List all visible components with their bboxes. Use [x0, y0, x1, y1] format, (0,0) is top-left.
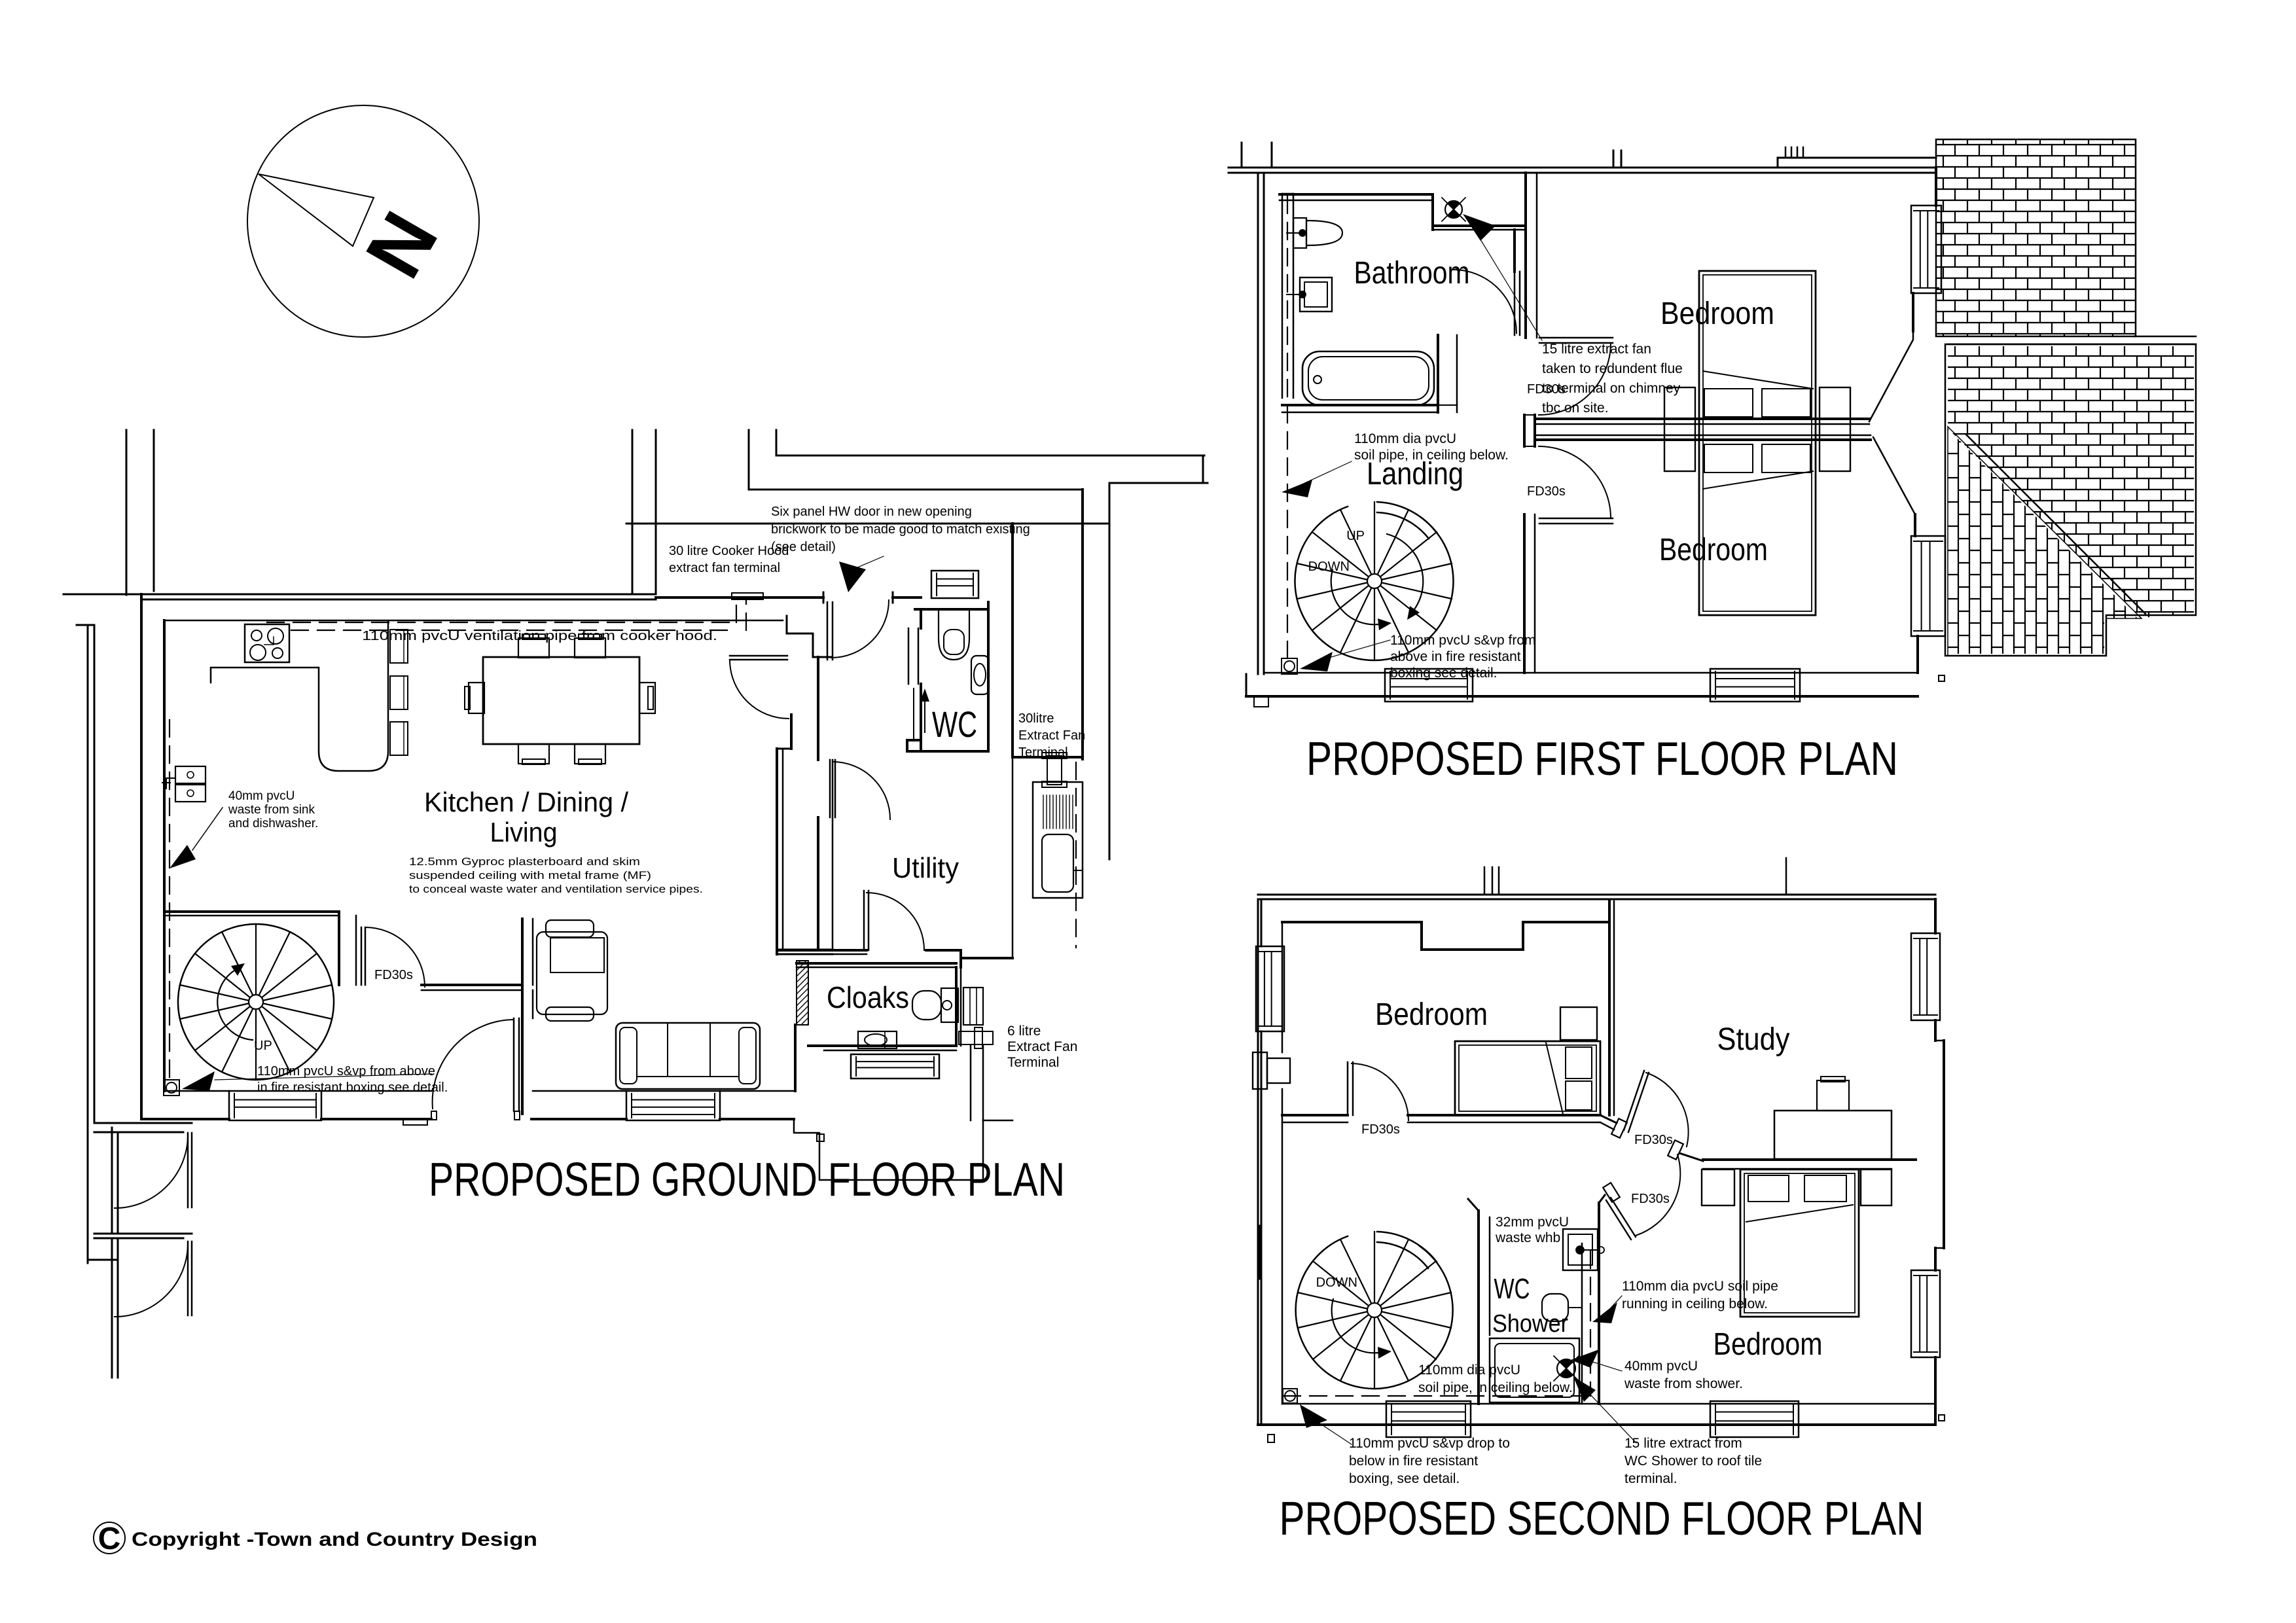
- svg-text:Extract Fan: Extract Fan: [1018, 728, 1085, 743]
- svg-text:110mm pvcU s&vp from above: 110mm pvcU s&vp from above: [257, 1064, 435, 1079]
- svg-text:FD30s: FD30s: [1527, 484, 1566, 499]
- svg-text:Kitchen / Dining /: Kitchen / Dining /: [424, 787, 628, 817]
- svg-text:40mm pvcU: 40mm pvcU: [228, 789, 295, 803]
- svg-text:Utility: Utility: [892, 852, 959, 884]
- svg-text:FD30s: FD30s: [1361, 1122, 1400, 1137]
- svg-text:and dishwasher.: and dishwasher.: [228, 817, 318, 830]
- svg-text:110mm pvcU s&vp from: 110mm pvcU s&vp from: [1390, 633, 1536, 648]
- svg-text:boxing, see detail.: boxing, see detail.: [1349, 1471, 1460, 1486]
- svg-text:FD30s: FD30s: [1634, 1133, 1673, 1147]
- svg-text:Study: Study: [1717, 1022, 1790, 1057]
- svg-text:PROPOSED FIRST FLOOR PLAN: PROPOSED FIRST FLOOR PLAN: [1306, 733, 1898, 785]
- svg-text:15 litre extract fan: 15 litre extract fan: [1542, 342, 1651, 357]
- svg-text:110mm dia pvcU: 110mm dia pvcU: [1354, 431, 1456, 446]
- svg-text:30litre: 30litre: [1018, 711, 1054, 726]
- svg-text:32mm pvcU: 32mm pvcU: [1496, 1215, 1569, 1230]
- svg-text:110mm dia pvcU soil pipe: 110mm dia pvcU soil pipe: [1622, 1279, 1778, 1294]
- svg-text:suspended ceiling with metal f: suspended ceiling with metal frame (MF): [409, 869, 651, 882]
- svg-text:terminal.: terminal.: [1624, 1471, 1677, 1486]
- svg-text:Six panel HW door in new openi: Six panel HW door in new opening: [771, 505, 972, 519]
- svg-text:Bathroom: Bathroom: [1354, 256, 1470, 291]
- svg-text:UP: UP: [254, 1039, 272, 1053]
- svg-text:FD30s: FD30s: [374, 968, 413, 982]
- svg-text:Bedroom: Bedroom: [1375, 997, 1488, 1032]
- svg-text:waste from sink: waste from sink: [228, 803, 315, 817]
- svg-text:15 litre extract from: 15 litre extract from: [1624, 1436, 1742, 1451]
- svg-text:below in fire resistant: below in fire resistant: [1349, 1454, 1478, 1469]
- svg-text:FD30s: FD30s: [1631, 1192, 1670, 1206]
- svg-text:boxing see detail.: boxing see detail.: [1390, 666, 1497, 681]
- svg-text:DOWN: DOWN: [1316, 1275, 1357, 1290]
- svg-text:110mm pvcU s&vp drop to: 110mm pvcU s&vp drop to: [1349, 1436, 1510, 1451]
- svg-text:above in fire resistant: above in fire resistant: [1390, 649, 1521, 664]
- svg-text:WC: WC: [1494, 1273, 1530, 1305]
- svg-text:extract fan terminal: extract fan terminal: [669, 561, 780, 575]
- svg-text:40mm pvcU: 40mm pvcU: [1624, 1359, 1698, 1374]
- svg-text:in fire resistant boxing see d: in fire resistant boxing see detail.: [257, 1080, 448, 1095]
- svg-text:6 litre: 6 litre: [1007, 1024, 1041, 1039]
- svg-text:Bedroom: Bedroom: [1713, 1327, 1823, 1362]
- svg-text:UP: UP: [1346, 529, 1365, 543]
- svg-text:110mm dia pvcU: 110mm dia pvcU: [1418, 1363, 1520, 1378]
- svg-text:Extract Fan: Extract Fan: [1007, 1039, 1077, 1054]
- svg-text:WC Shower to roof tile: WC Shower to roof tile: [1624, 1454, 1762, 1469]
- svg-text:PROPOSED SECOND FLOOR PLAN: PROPOSED SECOND FLOOR PLAN: [1280, 1493, 1924, 1545]
- svg-text:Terminal: Terminal: [1007, 1055, 1059, 1070]
- svg-text:C: C: [98, 1522, 121, 1556]
- svg-text:to conceal waste water and ven: to conceal waste water and ventilation s…: [409, 883, 703, 895]
- svg-text:waste whb: waste whb: [1495, 1230, 1560, 1245]
- svg-text:12.5mm Gyproc plasterboard and: 12.5mm Gyproc plasterboard and skim: [409, 855, 640, 868]
- svg-text:PROPOSED GROUND FLOOR PLAN: PROPOSED GROUND FLOOR PLAN: [429, 1154, 1065, 1206]
- svg-text:Living: Living: [490, 817, 558, 847]
- svg-text:brickwork to be made good to m: brickwork to be made good to match exist…: [771, 522, 1030, 537]
- svg-text:Copyright -Town and Country De: Copyright -Town and Country Design: [132, 1529, 537, 1550]
- svg-text:Shower: Shower: [1492, 1310, 1568, 1338]
- svg-text:waste from shower.: waste from shower.: [1624, 1376, 1743, 1391]
- svg-text:soil pipe, in ceiling below.: soil pipe, in ceiling below.: [1418, 1380, 1573, 1395]
- svg-text:FD30s: FD30s: [1527, 382, 1566, 397]
- svg-text:Cloaks: Cloaks: [827, 980, 909, 1014]
- svg-text:taken to redundent flue: taken to redundent flue: [1542, 361, 1683, 376]
- svg-text:DOWN: DOWN: [1308, 560, 1350, 574]
- svg-text:WC: WC: [932, 704, 977, 745]
- svg-text:soil pipe, in ceiling below.: soil pipe, in ceiling below.: [1354, 448, 1509, 463]
- svg-text:Bedroom: Bedroom: [1659, 533, 1768, 567]
- svg-text:110mm pvcU ventilation pipe fr: 110mm pvcU ventilation pipe from cooker …: [362, 629, 717, 643]
- svg-text:N: N: [349, 198, 455, 292]
- svg-text:Bedroom: Bedroom: [1660, 296, 1774, 331]
- svg-text:Terminal: Terminal: [1018, 745, 1068, 760]
- svg-text:30 litre Cooker Hood: 30 litre Cooker Hood: [669, 544, 789, 558]
- svg-text:running in ceiling below.: running in ceiling below.: [1622, 1296, 1768, 1311]
